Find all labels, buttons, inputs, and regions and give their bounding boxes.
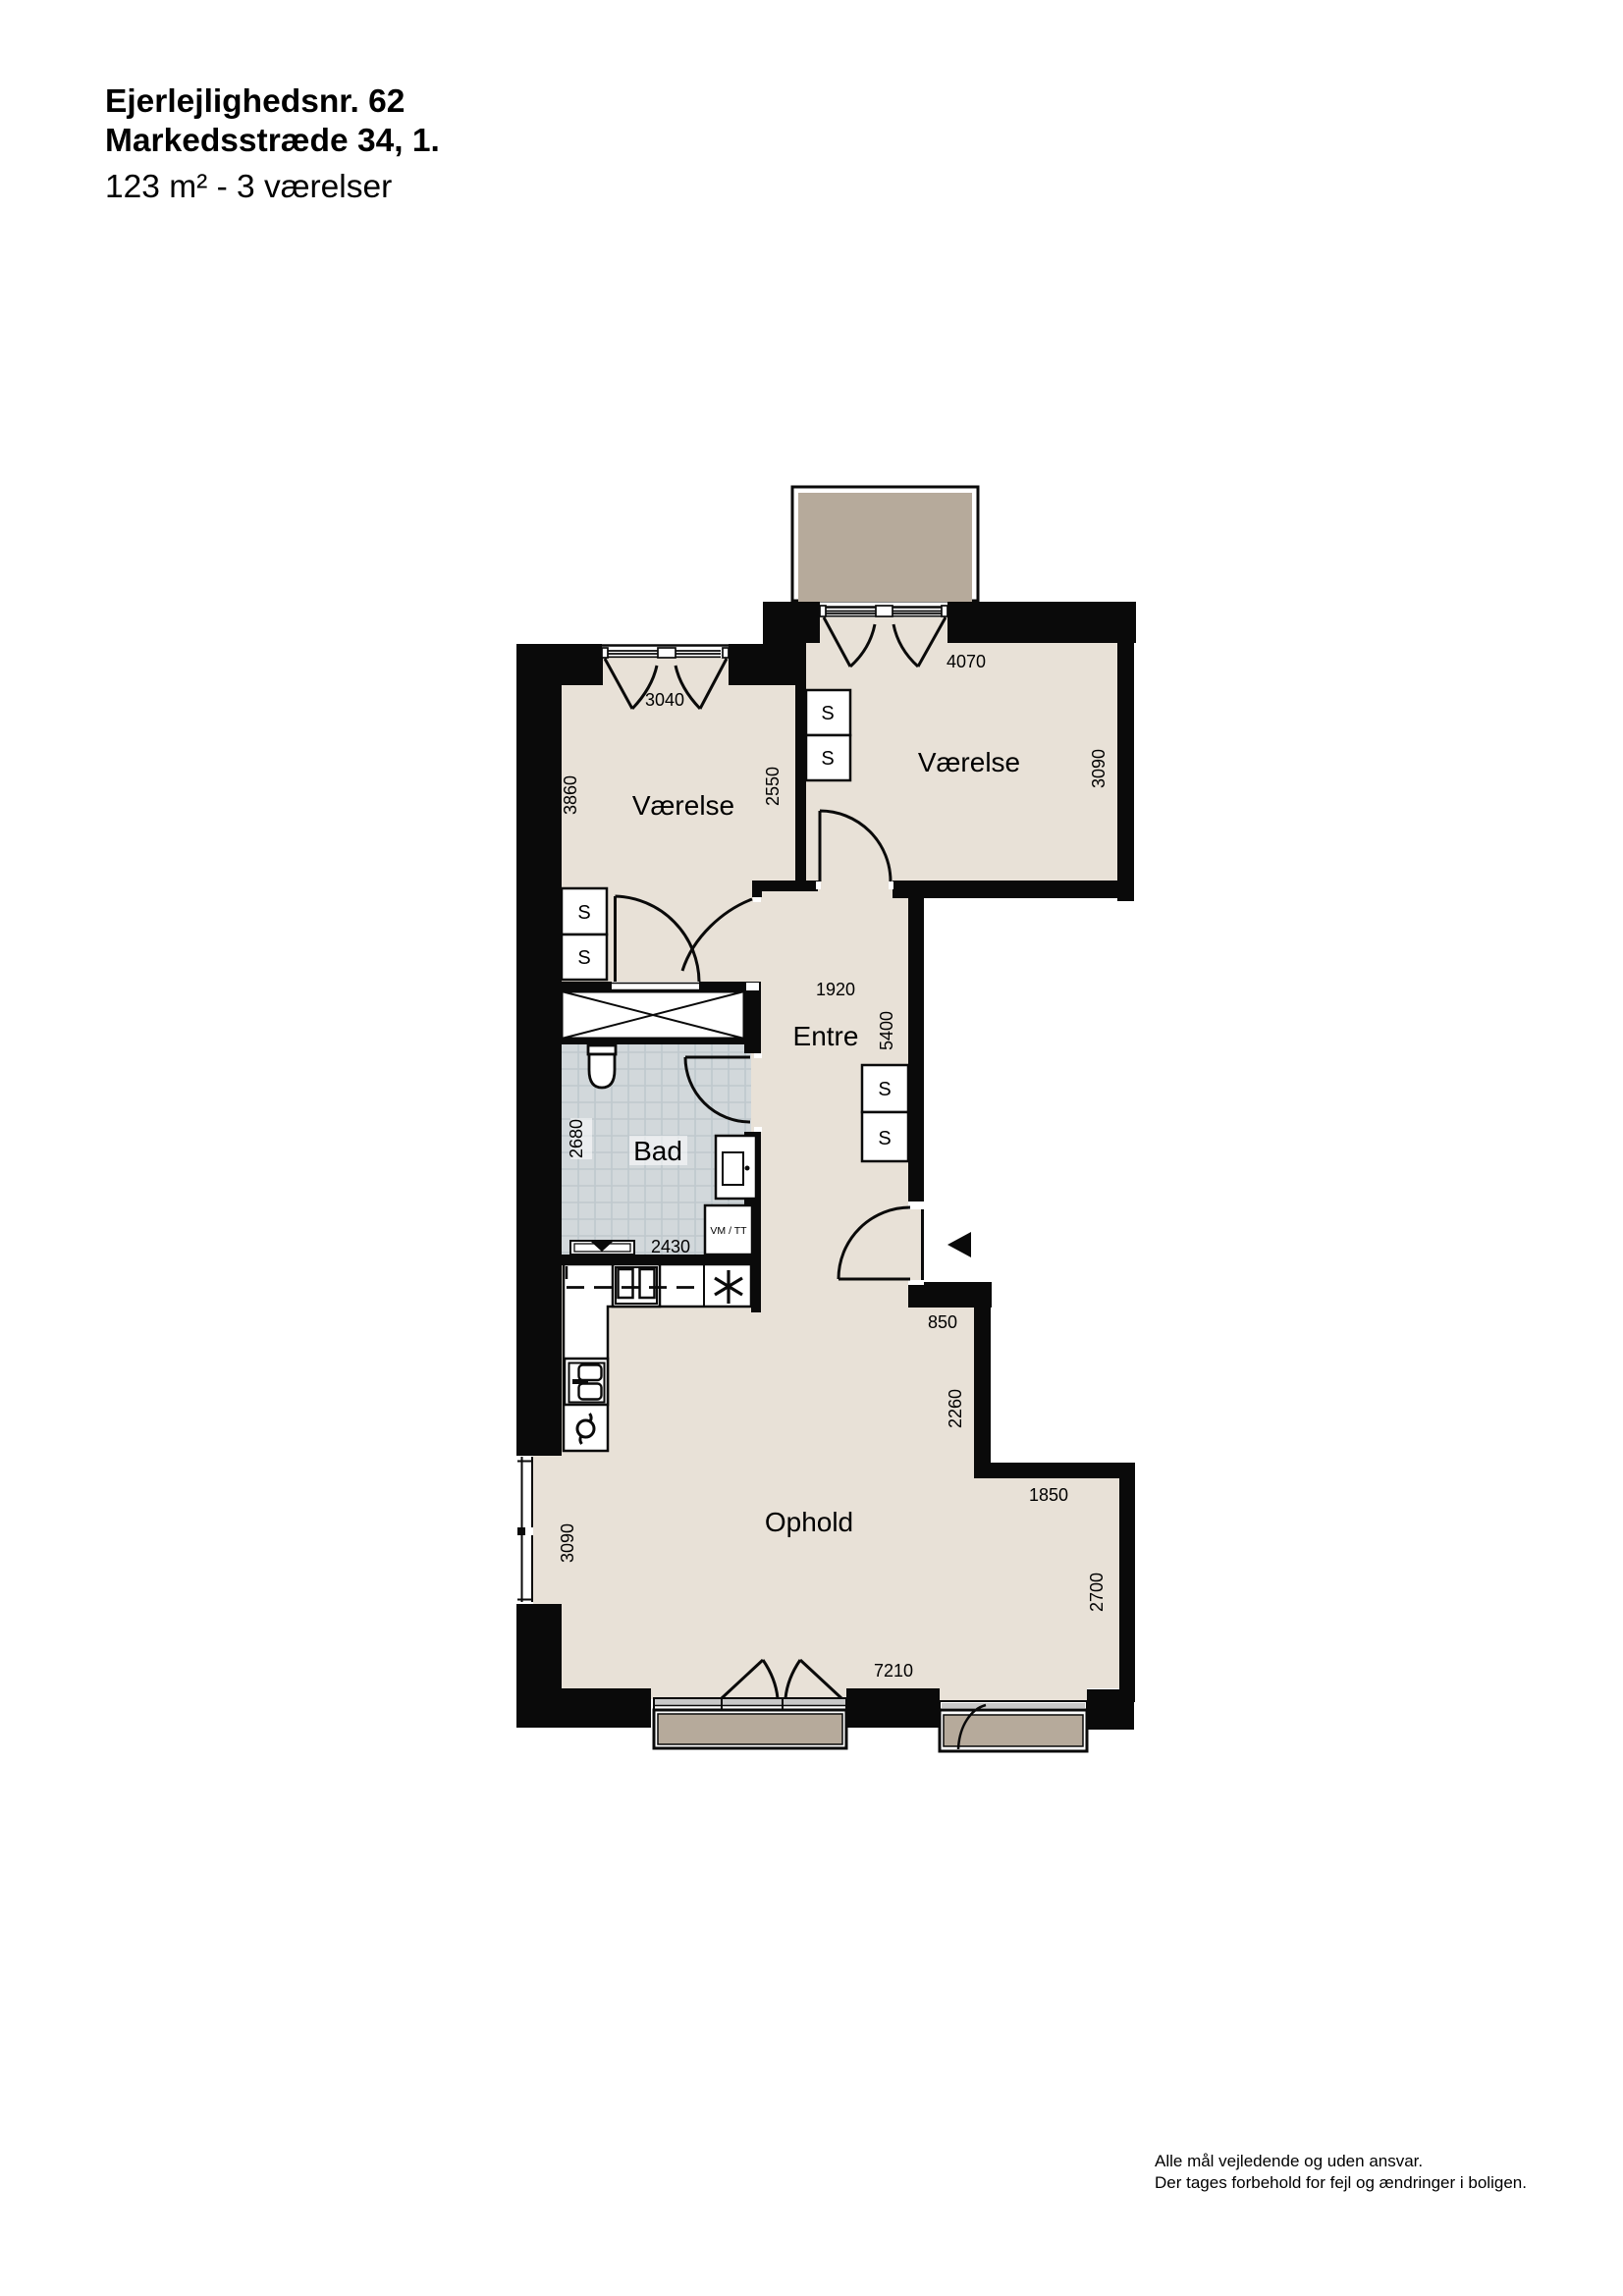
svg-text:5400: 5400 [877, 1011, 896, 1050]
svg-text:Bad: Bad [633, 1136, 682, 1166]
svg-text:7210: 7210 [874, 1661, 913, 1681]
svg-text:3040: 3040 [645, 690, 684, 710]
svg-text:1850: 1850 [1029, 1485, 1068, 1505]
svg-text:Markedsstræde 34, 1.: Markedsstræde 34, 1. [105, 123, 440, 159]
svg-text:S: S [821, 748, 834, 770]
svg-text:S: S [577, 902, 590, 924]
svg-text:1920: 1920 [816, 980, 855, 999]
svg-text:VM / TT: VM / TT [710, 1225, 747, 1237]
svg-text:123 m² - 3 værelser: 123 m² - 3 værelser [105, 169, 392, 205]
svg-text:Værelse: Værelse [632, 790, 734, 821]
svg-text:Ophold: Ophold [765, 1507, 853, 1537]
svg-text:3090: 3090 [558, 1523, 577, 1563]
svg-text:S: S [577, 947, 590, 969]
svg-text:2260: 2260 [946, 1389, 965, 1428]
svg-text:Alle mål vejledende og uden an: Alle mål vejledende og uden ansvar. [1155, 2152, 1423, 2170]
svg-text:3860: 3860 [561, 775, 580, 815]
svg-text:Værelse: Værelse [918, 747, 1020, 777]
svg-text:2680: 2680 [567, 1119, 586, 1158]
svg-text:4070: 4070 [947, 652, 986, 671]
svg-text:S: S [878, 1128, 891, 1149]
svg-text:Entre: Entre [793, 1021, 859, 1051]
svg-text:Der tages forbehold for fejl o: Der tages forbehold for fejl og ændringe… [1155, 2173, 1527, 2192]
svg-text:S: S [821, 703, 834, 724]
svg-text:2430: 2430 [651, 1237, 690, 1256]
svg-text:2550: 2550 [763, 767, 783, 806]
svg-text:850: 850 [928, 1312, 957, 1332]
svg-text:3090: 3090 [1089, 749, 1109, 788]
svg-text:Ejerlejlighedsnr. 62: Ejerlejlighedsnr. 62 [105, 83, 405, 120]
svg-text:2700: 2700 [1087, 1573, 1107, 1612]
svg-text:S: S [878, 1079, 891, 1100]
